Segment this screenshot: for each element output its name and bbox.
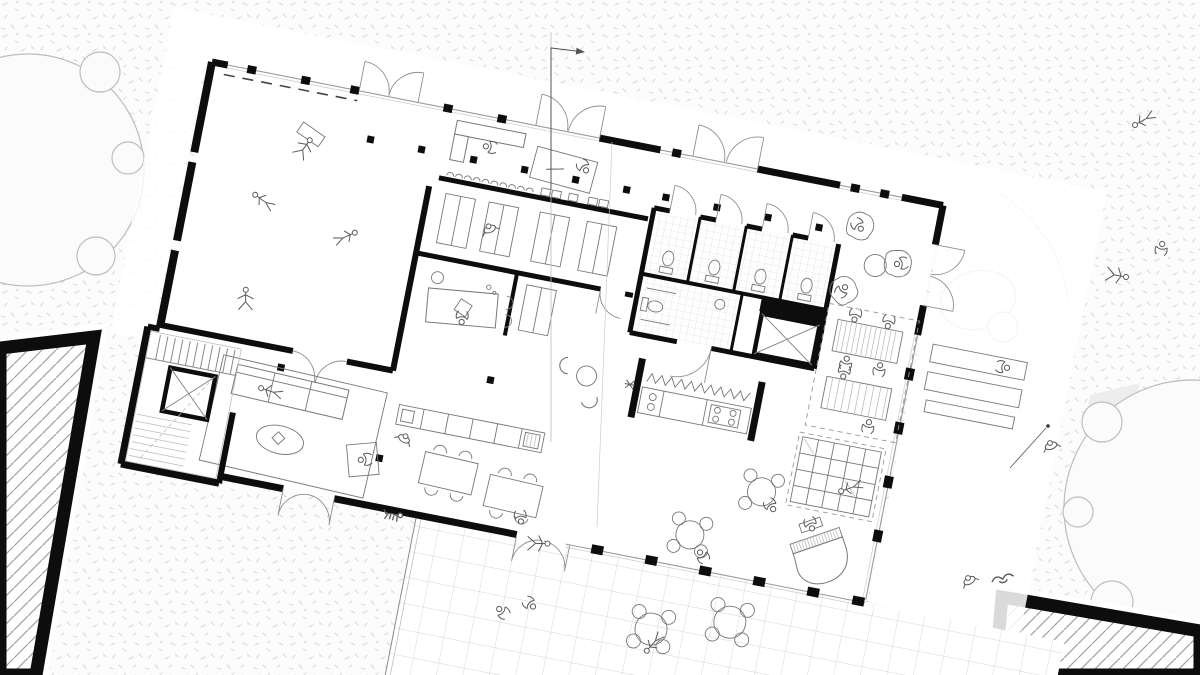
floor-plan-canvas bbox=[0, 0, 1200, 675]
site-plan-drawing bbox=[0, 0, 1200, 675]
